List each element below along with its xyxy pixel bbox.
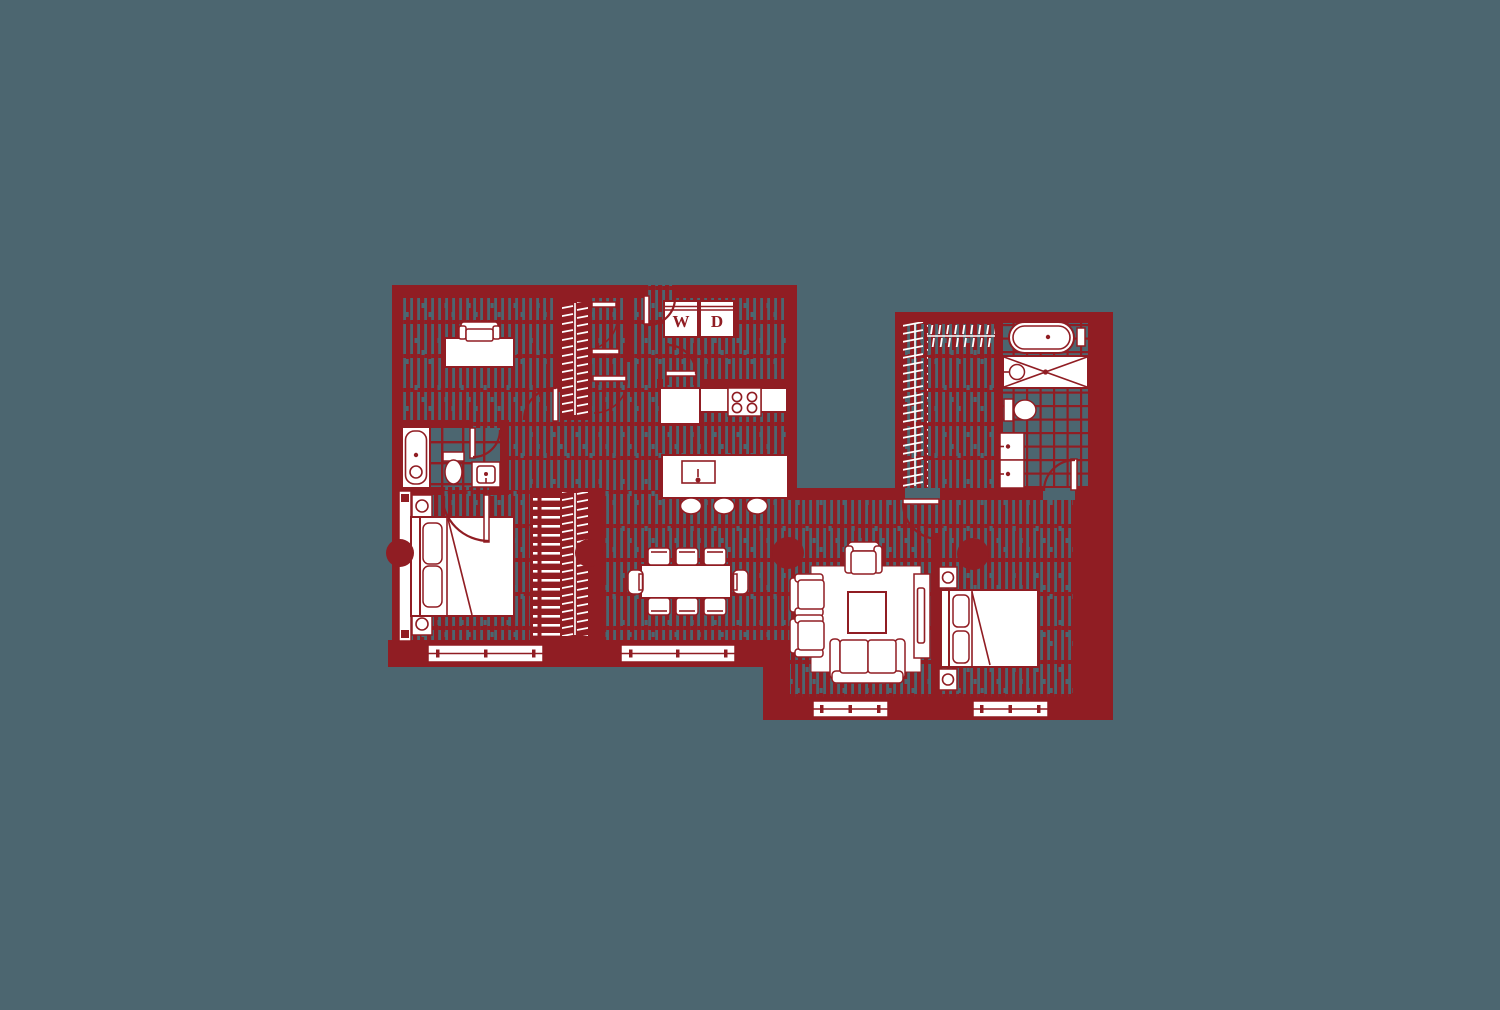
door-leaf xyxy=(903,499,939,504)
nightstand-icon xyxy=(939,567,957,588)
sink-vanity-icon xyxy=(472,462,500,487)
dining-chair xyxy=(704,548,726,565)
dining-chair xyxy=(648,598,670,615)
dining-table xyxy=(641,565,731,598)
double-vanity-icon xyxy=(1000,433,1024,488)
column-icon xyxy=(386,539,414,567)
toilet-icon xyxy=(1004,399,1036,421)
stove-icon xyxy=(728,388,761,416)
closet-door-leaf xyxy=(592,302,616,307)
column-icon xyxy=(772,537,804,569)
bathtub-icon xyxy=(402,427,430,488)
armchair-icon xyxy=(790,574,824,616)
closet-shelves-icon xyxy=(533,493,560,636)
dryer-label: D xyxy=(711,312,723,331)
closet-door-leaf xyxy=(593,376,626,381)
nightstand-icon xyxy=(939,669,957,690)
door-leaf xyxy=(666,371,696,376)
dining-armchair xyxy=(628,570,643,594)
dining-chair xyxy=(704,598,726,615)
tv-console xyxy=(914,574,930,658)
column-icon xyxy=(957,538,989,570)
bar-stool-icon xyxy=(714,498,735,514)
dryer-icon: D xyxy=(700,301,734,337)
washer-icon: W xyxy=(664,301,698,337)
shower-icon xyxy=(1003,356,1088,388)
door-leaf xyxy=(553,388,558,421)
freestanding-bathtub-icon xyxy=(1009,322,1074,353)
dining-armchair xyxy=(733,570,748,594)
dining-chair xyxy=(676,548,698,565)
accent-chair-icon xyxy=(845,542,882,574)
nightstand-icon xyxy=(412,495,432,517)
window xyxy=(973,701,1048,717)
sofa-icon xyxy=(830,639,905,683)
floor-plan-drawing: W D xyxy=(0,0,1500,1010)
dining-chair xyxy=(648,548,670,565)
column-icon xyxy=(575,539,603,567)
door-leaf xyxy=(1071,459,1077,490)
kitchen-island xyxy=(662,455,788,498)
window xyxy=(428,645,543,662)
armchair-icon xyxy=(790,615,824,657)
wall-niche xyxy=(1077,328,1085,346)
coffee-table xyxy=(848,592,886,633)
bed-icon xyxy=(941,590,1038,667)
door-leaf xyxy=(644,296,649,324)
bar-stool-icon xyxy=(747,498,768,514)
dining-chair xyxy=(676,598,698,615)
bar-stool-icon xyxy=(681,498,702,514)
washer-label: W xyxy=(673,312,690,331)
closet-door-leaf xyxy=(592,349,619,354)
door-leaf xyxy=(484,495,489,542)
desk-chair-icon xyxy=(459,322,500,341)
door-leaf xyxy=(470,428,475,458)
floor-plan-page: W D xyxy=(0,0,1500,1010)
kitchen-cabinet xyxy=(660,388,700,424)
toilet-icon xyxy=(443,452,464,484)
window xyxy=(813,701,888,717)
desk-icon xyxy=(445,338,514,367)
window xyxy=(621,645,735,662)
